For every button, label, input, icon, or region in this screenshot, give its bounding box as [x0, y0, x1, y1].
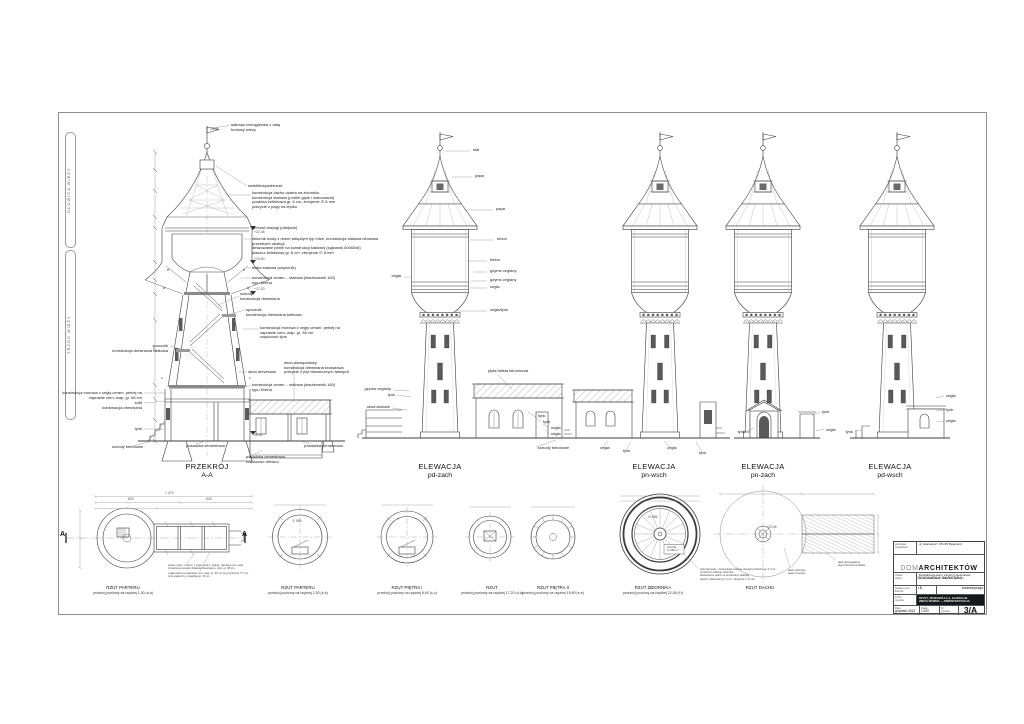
stage-label: Stadium proj. Branża: [894, 586, 917, 594]
plan-parter-bb: [268, 505, 332, 569]
annotation-label: gzyms ceglany: [490, 278, 516, 283]
annotation-label: cegła/tynk: [490, 308, 508, 313]
elevation-title-4: ELEWACJA: [810, 462, 970, 471]
annotation-label: tynk: [543, 420, 550, 425]
annotation-label: schody betonowe: [538, 446, 569, 451]
scale-cell: Skala1:100: [920, 606, 940, 615]
date-value: grudzień 2013: [895, 609, 915, 613]
annotation-label: tynk: [822, 410, 829, 415]
annotation-label: dach dwuspadowy płyta bitumiczna falista: [838, 561, 865, 567]
number-label: Nr rysunku: [941, 607, 950, 613]
content-label: Treść rysunku: [894, 595, 917, 605]
annotation-label: 643: [206, 498, 212, 502]
annotation-label: +19,60: [254, 258, 264, 262]
annotation-label: cegła: [946, 394, 956, 399]
plan-pietro2-ee: [531, 515, 575, 559]
elevation-tower-pn-wsch: [623, 132, 697, 438]
annotation-label: papa: [475, 174, 484, 179]
annotation-label: ∅ 590: [292, 520, 302, 524]
annotation-label: papa: [496, 207, 505, 212]
elevation-tower-pd-wsch: [860, 132, 934, 438]
annotation-label: 23,48: [210, 128, 219, 132]
annotation-label: gzyms ceglany: [490, 269, 516, 274]
plan-zbiornik-ff: [620, 494, 700, 574]
date-cell: Datagrudzień 2013: [894, 606, 920, 615]
annotation-label: schody betonowe: [112, 445, 143, 450]
titleblock-object-row: Obiekt Adres Rewitalizacja wieży ciśnień…: [894, 573, 984, 586]
annotation-label: posadzka cementowa: [186, 444, 225, 449]
annotation-label: +17,20: [254, 288, 264, 292]
annotation-label: cegła: [551, 432, 561, 437]
annotation-label: dach stożkowy papa na lepiku: [788, 569, 806, 575]
annotation-label: posadzka cementowa: [304, 444, 343, 449]
annotation-label: cegła: [551, 426, 561, 431]
section-title: PRZEKRÓJ: [127, 462, 287, 471]
plan-title-1: RZUT PARTERU: [43, 585, 203, 590]
plan-pietro1-cc: [377, 507, 437, 567]
stage-value2-cell: inwentaryzacja: [937, 586, 984, 594]
plan-subtitle-6: przekrój poziomy na rzędnej 22,48 (f-f): [573, 591, 733, 595]
annotation-label: c: [249, 376, 251, 381]
annotation-label: tynk: [388, 393, 395, 398]
annotation-label: 830: [128, 498, 134, 502]
titleblock-footer-row: Datagrudzień 2013 Skala1:100 Nr rysunku …: [894, 606, 984, 615]
titleblock-stage-row: Stadium proj. Branża I.B. inwentaryzacja: [894, 586, 984, 595]
stage-value2: inwentaryzacja: [962, 586, 983, 590]
annotation-label: spocznik konstrukcja drewniana belkowa: [112, 344, 168, 353]
elevation-title-1: ELEWACJA: [360, 462, 520, 471]
annotation-label: konstrukcja dachu oparta na zbiorniku ko…: [252, 191, 335, 209]
annotation-label: d: [247, 286, 249, 291]
annotation-label: dach dwuspadowy konstrukcja drewniana kr…: [284, 361, 349, 375]
scale-value: 1:100: [921, 609, 929, 613]
annotation-label: płyta falista bitumiczna: [488, 369, 528, 374]
titleblock-unit-row: jednostka projektowa ul. Gdańska 27, 85-…: [894, 542, 984, 555]
annotation-label: tynk: [623, 449, 630, 454]
annotation-label: cegła pełna na zaprawie cem.-wap. gr. 66…: [168, 572, 249, 578]
annotation-label: ∅ 886: [648, 516, 658, 520]
annotation-label: tynk: [135, 427, 142, 432]
drawing-linework: [0, 0, 1024, 724]
annotation-label: stal: [473, 148, 479, 153]
annotation-label: cegła: [667, 446, 677, 451]
annotation-label: +22,48: [254, 231, 264, 235]
annotation-label: +23,48: [766, 526, 776, 530]
plan-title-7: RZUT DACHU: [680, 585, 840, 590]
annotation-label: konstrukcja ceram. - stalowa (dwuteownik…: [252, 383, 335, 392]
logo-prefix: DOM: [900, 565, 918, 572]
elevation-subtitle-1: pd-zach: [360, 472, 520, 479]
annotation-label: e: [167, 268, 169, 273]
annotation-label: tynk: [699, 451, 706, 456]
annotation-label: c: [161, 376, 163, 381]
annotation-label: beton: [490, 258, 500, 263]
annotation-label: konstrukcja ceram. - stalowa (dwuteownik…: [252, 276, 335, 285]
section-subtitle: A-A: [127, 472, 287, 479]
annotation-label: konstrukcja murowa z cegły ceram. pełnej…: [62, 391, 142, 400]
annotation-label: belka stalowa (wspornik): [252, 266, 296, 271]
elevation-drawings: [358, 132, 950, 452]
annotation-label: zbiornik wody - konstrukcja stalowa nito…: [700, 568, 775, 581]
annotation-label: ±0,00: [254, 434, 262, 438]
unit-value: ul. Gdańska 27, 85-005 Bydgoszcz: [917, 542, 984, 554]
annotation-label: ściany zewn. i wewn. z cegły ceram. pełn…: [168, 564, 244, 570]
annotation-label: 1 473: [165, 492, 174, 496]
annotation-label: zbiornik V=150 m³: [667, 546, 679, 552]
annotation-label: cegła: [946, 419, 956, 424]
annotation-label: schody konstrukcja drewniana: [240, 292, 280, 301]
unit-label: jednostka projektowa: [894, 542, 917, 554]
annotation-label: świetlik/wywietrznik: [248, 184, 282, 189]
annotation-label: spocznik konstrukcja drewniana belkowa: [246, 308, 302, 317]
annotation-label: tynk: [946, 408, 953, 413]
annotation-label: beton: [497, 237, 507, 242]
elevation-tower-pn-zach: [726, 132, 800, 438]
annotation-label: tynk: [846, 430, 853, 435]
annotation-label: cegła: [490, 285, 500, 290]
annotation-label: konstrukcja murowa z cegły ceram. pełnej…: [260, 326, 340, 340]
annotation-label: okna drewniane: [248, 370, 276, 375]
annotation-label: stalowa chorągiewka z datą budowy wieży: [231, 123, 280, 132]
annotation-label: A: [242, 531, 247, 539]
annotation-label: tynk: [538, 414, 545, 419]
annotation-label: cegła: [600, 446, 610, 451]
drawing-sheet-page: { "drawing": { "section": {"title": "PRZ…: [0, 0, 1024, 724]
annotation-label: d: [163, 286, 165, 291]
plan-parter-aa: [66, 508, 245, 571]
annotation-label: e: [243, 268, 245, 273]
title-block: jednostka projektowa ul. Gdańska 27, 85-…: [893, 541, 985, 614]
stage-value-cell: I.B.: [917, 586, 937, 594]
titleblock-logo-row: DOMARCHITEKTÓW pracownia autorska: [894, 555, 984, 573]
drawing-content-title: RZUTY, PRZEKRÓJ A-A, ELEWACJE WIEŻA WODN…: [917, 595, 984, 605]
annotation-label: sufit konstrukcja drewniana: [102, 401, 142, 410]
annotation-label: okna stalowe: [367, 405, 390, 410]
elevation-tower-pd-zach: [403, 132, 477, 438]
annotation-label: gzyms ceglany: [365, 387, 391, 392]
annotation-label: zbiornik wody z dnem wklęsłym typ Intze,…: [252, 237, 378, 255]
drawing-number: 3/A: [957, 606, 984, 615]
logo-main: ARCHITEKTÓW: [919, 565, 978, 572]
annotation-label: tynk: [738, 430, 745, 435]
object-label: Obiekt Adres: [894, 573, 917, 585]
plan-dd: [465, 512, 515, 562]
elevation-subtitle-4: pd-wsch: [810, 472, 970, 479]
object-value: Rewitalizacja wieży ciśnień (przebudowa)…: [917, 573, 984, 585]
annotation-label: A: [60, 531, 65, 539]
annotation-label: cegła: [391, 274, 401, 279]
stage-value: I.B.: [918, 586, 923, 590]
annotation-label: cegła: [826, 428, 836, 433]
plan-subtitle-1: przekrój poziomy na rzędnej 1,00 (a-a): [43, 591, 203, 595]
